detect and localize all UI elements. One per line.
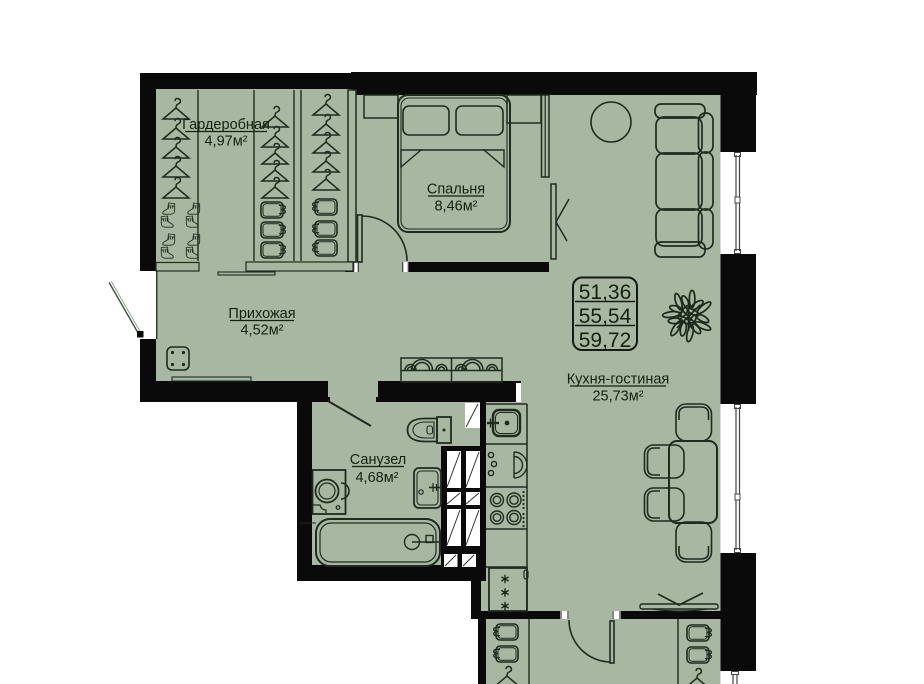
svg-text:4,52м²: 4,52м²: [240, 323, 283, 339]
svg-text:55,54: 55,54: [579, 305, 632, 328]
svg-text:4,97м²: 4,97м²: [204, 134, 247, 150]
svg-text:Прихожая: Прихожая: [228, 306, 295, 322]
svg-text:Гардеробная: Гардеробная: [182, 117, 270, 133]
svg-text:59,72: 59,72: [579, 329, 632, 352]
svg-text:4,68м²: 4,68м²: [355, 470, 398, 486]
svg-text:25,73м²: 25,73м²: [592, 389, 643, 405]
svg-text:Санузел: Санузел: [350, 452, 407, 468]
svg-text:Кухня-гостиная: Кухня-гостиная: [567, 372, 670, 388]
svg-text:51,36: 51,36: [579, 281, 632, 304]
svg-text:8,46м²: 8,46м²: [434, 199, 477, 215]
svg-text:Спальня: Спальня: [427, 182, 485, 198]
